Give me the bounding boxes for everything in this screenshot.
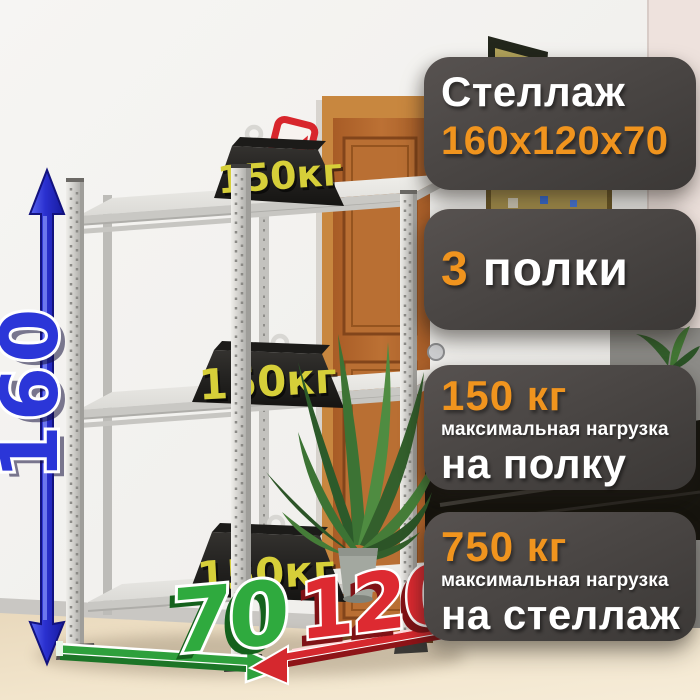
- shelves-label: полки: [483, 243, 629, 296]
- shelf-load-target: на полку: [441, 441, 682, 486]
- badge-title: Стеллаж: [441, 67, 682, 117]
- total-load-value: 750 кг: [441, 524, 682, 570]
- product-image: 150кг 150кг 150кг 150кг 150кг 150кг: [0, 0, 700, 700]
- shelf-load-note: максимальная нагрузка: [441, 419, 682, 441]
- info-badge-shelf-load: 150 кг максимальная нагрузка на полку: [424, 365, 696, 490]
- info-badge-total-load: 750 кг максимальная нагрузка на стеллаж: [424, 512, 696, 641]
- weight-label: 150кг: [197, 353, 338, 409]
- height-dimension-label: 160 160: [0, 305, 83, 486]
- badge-shelves-text: 3полки: [441, 242, 629, 297]
- info-badge-shelves: 3полки: [424, 209, 696, 330]
- info-badge-size: Стеллаж 160х120х70: [424, 57, 696, 190]
- total-load-target: на стеллаж: [441, 592, 682, 637]
- badge-size-value: 160х120х70: [441, 117, 682, 165]
- shelf-load-value: 150 кг: [441, 373, 682, 419]
- height-value: 160: [0, 305, 76, 480]
- total-load-note: максимальная нагрузка: [441, 570, 682, 592]
- shelves-count: 3: [441, 243, 469, 296]
- door-knob: [428, 344, 444, 360]
